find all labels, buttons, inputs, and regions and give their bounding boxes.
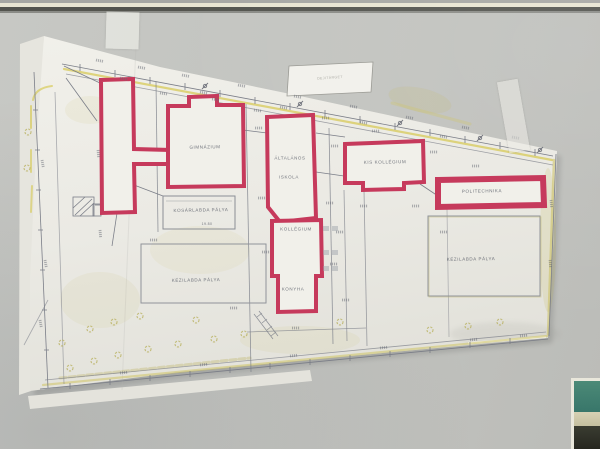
label-kezilabda-palya-right: KÉZILABDA PÁLYA bbox=[447, 256, 496, 262]
label-iskola: ISKOLA bbox=[279, 175, 299, 180]
label-kezilabda-palya-left: KÉZILABDA PÁLYA bbox=[172, 277, 221, 283]
photo-corner bbox=[571, 378, 600, 449]
label-kosarlabda-palya: KOSÁRLABDA PÁLYA bbox=[173, 207, 228, 213]
label-kollegium: KOLLÉGIUM bbox=[280, 227, 312, 232]
photograph-of-site-plan: GIMNÁZIUM ÁLTALÁNOS ISKOLA KIS KOLLÉGIUM… bbox=[0, 0, 600, 449]
label-dimension-19-80: 19.80 bbox=[202, 222, 213, 226]
label-konyha: KONYHA bbox=[282, 287, 305, 292]
photo-sand-area bbox=[574, 412, 600, 426]
label-gimnazium: GIMNÁZIUM bbox=[189, 144, 220, 150]
tape-strip-left bbox=[106, 12, 140, 50]
building-gimnazium-main-block bbox=[168, 96, 244, 187]
building-kis-kollegium-outline bbox=[345, 141, 424, 190]
site-plan-svg bbox=[0, 0, 600, 449]
label-altalanos: ÁLTALÁNOS bbox=[274, 156, 305, 161]
building-altalanos-iskola-outline bbox=[267, 115, 316, 222]
photo-dark-area bbox=[574, 426, 600, 449]
corner-curl-shade bbox=[450, 322, 560, 346]
label-kis-kollegium: KIS KOLLÉGIUM bbox=[364, 159, 407, 165]
label-politechnika: POLITECHNIKA bbox=[462, 188, 502, 194]
building-kollegium-konyha-outline bbox=[272, 220, 322, 312]
photo-sky-area bbox=[574, 381, 600, 412]
